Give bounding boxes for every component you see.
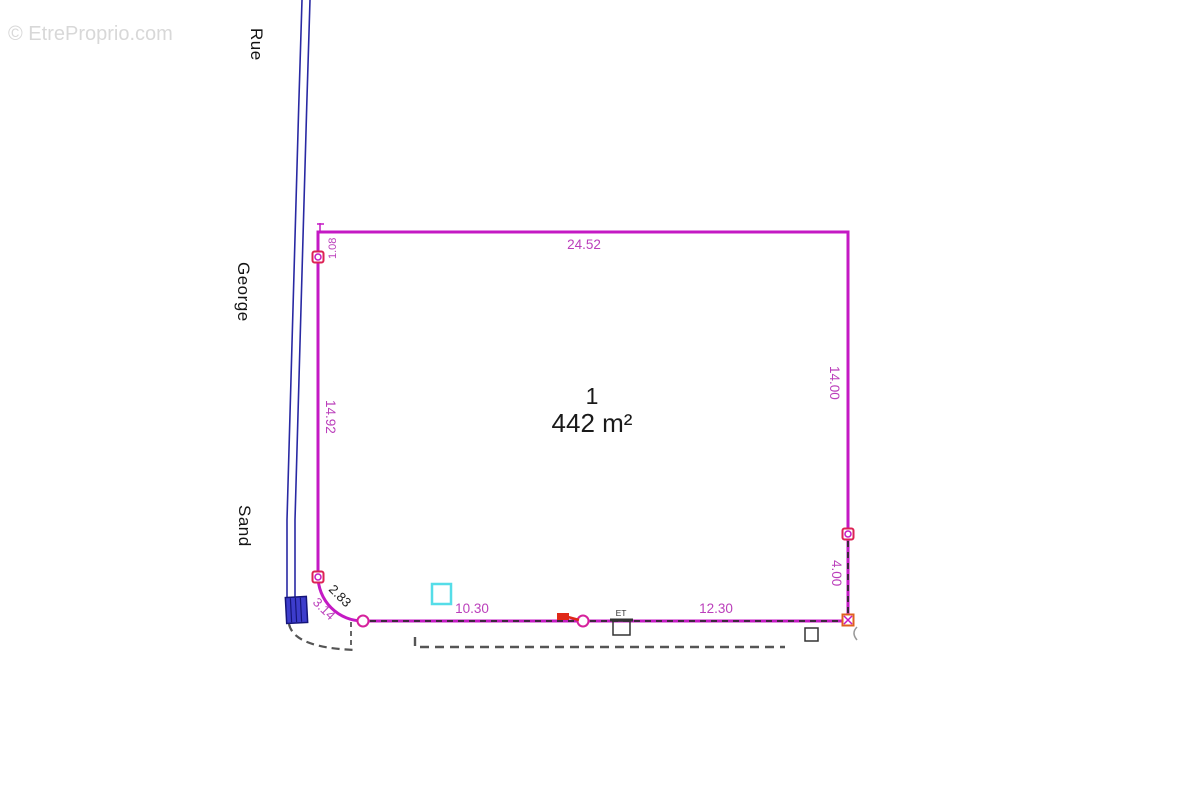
utility-dashed-lower-line bbox=[415, 637, 785, 647]
cyan-square-feature bbox=[432, 584, 451, 604]
et-box-rect bbox=[613, 621, 630, 635]
street-name-word-sand: Sand bbox=[235, 505, 254, 547]
et-box-label: ET bbox=[616, 608, 627, 618]
street-name-word-george: George bbox=[234, 262, 253, 322]
red-valve-symbol bbox=[557, 613, 579, 620]
dimension-right-upper: 14.00 bbox=[827, 366, 842, 400]
small-grey-arc bbox=[854, 627, 857, 640]
marker-square bbox=[313, 572, 324, 583]
dimension-bottom-left: 10.30 bbox=[455, 601, 489, 616]
road-edge-lines bbox=[287, 0, 310, 600]
marker-square bbox=[313, 252, 324, 263]
parcel-lot-number: 1 bbox=[586, 383, 599, 409]
marker-square bbox=[843, 529, 854, 540]
boundary-point-circle-left bbox=[358, 616, 369, 627]
street-name-word-rue: Rue bbox=[247, 28, 266, 61]
boundary-marker-right bbox=[843, 529, 854, 540]
boundary-marker-bottom-right bbox=[843, 615, 854, 626]
utility-square bbox=[805, 628, 818, 641]
cadastral-plan-canvas: © EtreProprio.com Rue George Sand bbox=[0, 0, 1200, 800]
boundary-marker-bottom-left bbox=[313, 572, 324, 583]
plan-drawing: © EtreProprio.com Rue George Sand bbox=[0, 0, 1200, 800]
dimension-top: 24.52 bbox=[567, 237, 601, 252]
dimension-bottom-right: 12.30 bbox=[699, 601, 733, 616]
utility-dashed-curve bbox=[289, 624, 356, 650]
road-edge-left-line bbox=[287, 0, 302, 597]
dimension-top-corner: 1.08 bbox=[327, 238, 339, 259]
road-culvert-feature bbox=[285, 596, 307, 623]
dimension-left: 14.92 bbox=[323, 400, 338, 434]
et-utility-box: ET bbox=[610, 608, 633, 635]
dimension-right-lower: 4.00 bbox=[829, 560, 844, 586]
road-edge-right-line bbox=[295, 0, 310, 600]
boundary-marker-top-left bbox=[313, 252, 324, 263]
boundary-point-circle-mid bbox=[578, 616, 589, 627]
parcel-area-label: 442 m² bbox=[552, 408, 633, 438]
red-valve-body bbox=[557, 613, 569, 620]
watermark-text: © EtreProprio.com bbox=[8, 23, 173, 45]
